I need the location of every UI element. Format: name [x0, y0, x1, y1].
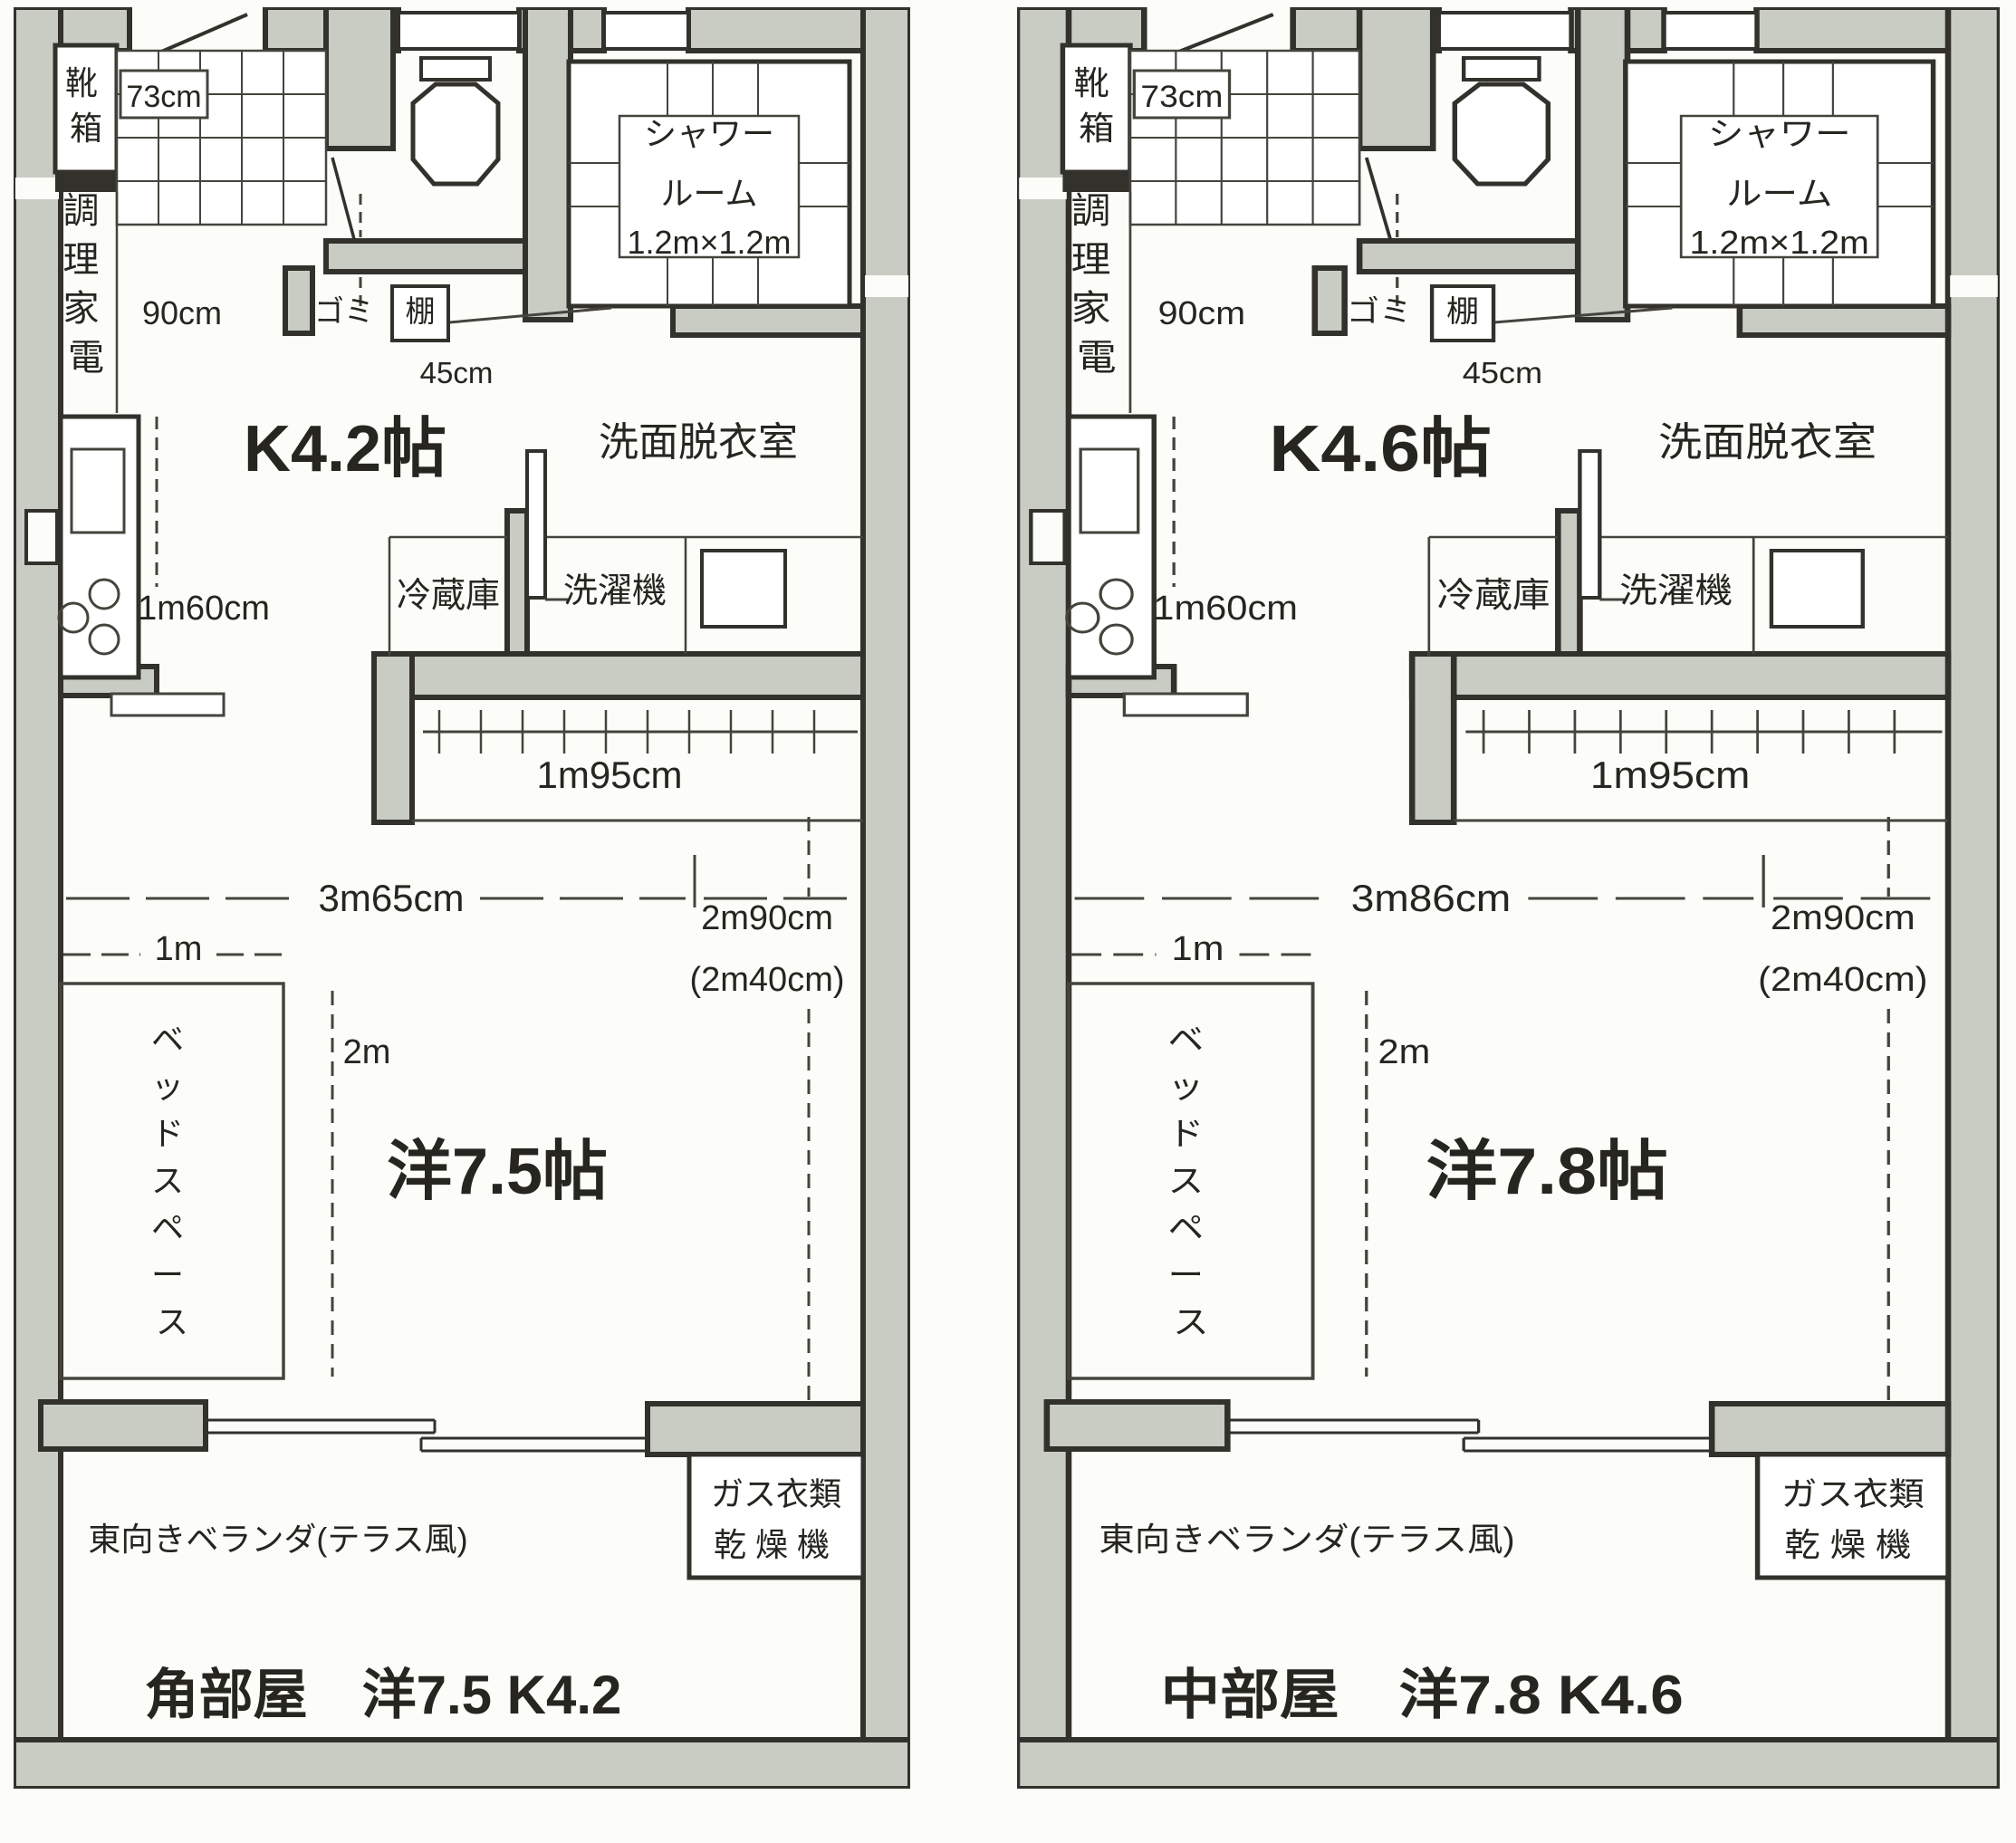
shower-size-label: 1.2m×1.2m — [1690, 226, 1869, 262]
bed-width-label: 1m — [1172, 930, 1224, 968]
floorplan-sheet: 靴 箱 73cm 調 理 家 電 90cm ゴミ 棚 45cm K4.2帖 シャ… — [0, 0, 2016, 1843]
shower-label-2: ルーム — [1726, 177, 1832, 213]
shelf-label: 棚 — [406, 294, 436, 328]
room-width-label: 3m65cm — [318, 877, 464, 919]
veranda-label: 東向きベランダ(テラス風) — [88, 1521, 467, 1558]
trash-label: ゴミ — [1347, 295, 1412, 328]
unit-title: 中部屋 洋7.8 K4.6 — [1160, 1665, 1683, 1726]
shower-label-1: シャワー — [644, 115, 774, 152]
counter-length-label: 1m60cm — [138, 590, 270, 628]
bed-space-label: ベ ッ ド ス ペ ー ス — [1168, 1022, 1214, 1341]
fridge-label: 冷蔵庫 — [397, 577, 500, 615]
shelf-label: 棚 — [1446, 295, 1479, 328]
plan-middle-unit: 靴 箱 73cm 調 理 家 電 90cm ゴミ 棚 45cm K4.6帖 シャ… — [1017, 7, 2000, 1789]
washer-label: 洗濯機 — [563, 572, 667, 610]
room-length-alt-label: (2m40cm) — [689, 961, 844, 999]
corridor-width-label: 90cm — [1158, 296, 1245, 332]
entry-width-label: 73cm — [126, 80, 201, 114]
bed-width-label: 1m — [155, 930, 203, 968]
shower-size-label: 1.2m×1.2m — [627, 224, 791, 261]
room-length-alt-label: (2m40cm) — [1758, 961, 1927, 999]
room-length-label: 2m90cm — [701, 899, 833, 937]
bed-space-label: ベ ッ ド ス ペ ー ス — [151, 1021, 193, 1340]
plan-corner-unit: 靴 箱 73cm 調 理 家 電 90cm ゴミ 棚 45cm K4.2帖 シャ… — [14, 7, 910, 1789]
entry-width-label: 73cm — [1140, 79, 1223, 113]
shelf-width-label: 45cm — [420, 356, 494, 389]
room-size-label: 洋7.5帖 — [387, 1136, 608, 1208]
veranda-label: 東向きベランダ(テラス風) — [1099, 1522, 1514, 1559]
counter-length-label: 1m60cm — [1153, 590, 1298, 628]
room-size-label: 洋7.8帖 — [1426, 1136, 1668, 1208]
washroom-label: 洗面脱衣室 — [1658, 419, 1877, 465]
dryer-label-2: 乾燥機 — [1784, 1528, 1921, 1564]
washroom-label: 洗面脱衣室 — [599, 420, 798, 465]
appliance-label: 調 理 家 電 — [1071, 190, 1122, 378]
room-length-label: 2m90cm — [1771, 899, 1915, 937]
bed-length-label: 2m — [1378, 1033, 1430, 1071]
shower-label-1: シャワー — [1708, 117, 1851, 153]
unit-title: 角部屋 洋7.5 K4.2 — [145, 1665, 622, 1725]
dryer-label-1: ガス衣類 — [711, 1475, 841, 1512]
dryer-label-2: 乾燥機 — [714, 1526, 839, 1563]
shower-label-2: ルーム — [661, 175, 758, 212]
appliance-label: 調 理 家 電 — [62, 191, 109, 378]
kitchen-size-label: K4.2帖 — [244, 413, 446, 485]
room-width-label: 3m86cm — [1351, 878, 1511, 920]
closet-length-label: 1m95cm — [1590, 754, 1750, 797]
dryer-label-1: ガス衣類 — [1781, 1477, 1925, 1513]
closet-length-label: 1m95cm — [536, 754, 682, 796]
washer-label: 洗濯機 — [1619, 572, 1733, 610]
fridge-label: 冷蔵庫 — [1437, 577, 1550, 615]
bed-length-label: 2m — [343, 1033, 391, 1071]
trash-label: ゴミ — [314, 294, 374, 328]
corridor-width-label: 90cm — [142, 294, 222, 331]
kitchen-size-label: K4.6帖 — [1269, 413, 1492, 485]
shelf-width-label: 45cm — [1463, 357, 1542, 389]
